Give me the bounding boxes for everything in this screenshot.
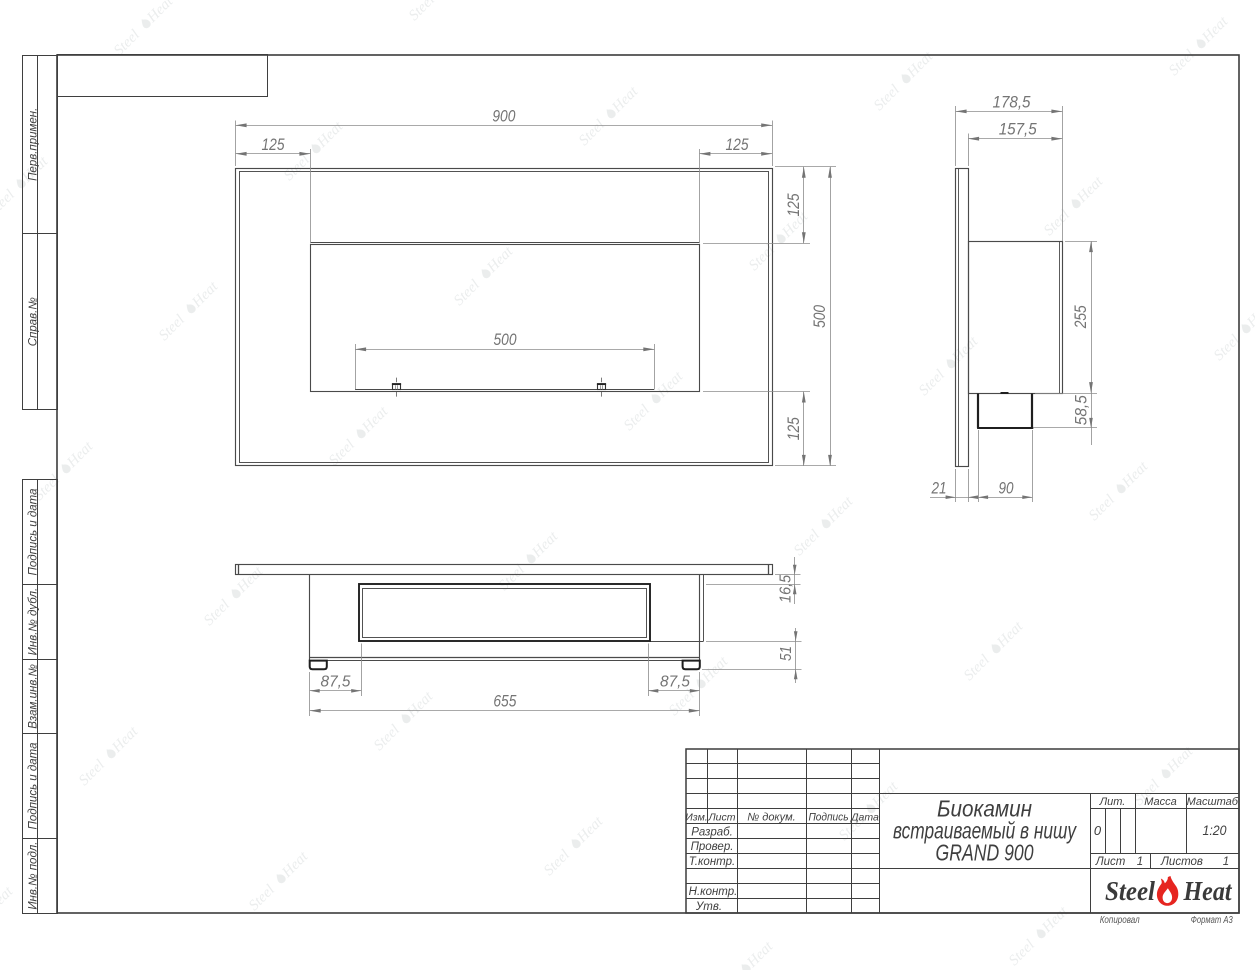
svg-text:1:20: 1:20 [1203,823,1227,838]
svg-text:0: 0 [1094,823,1102,838]
svg-text:Масштаб: Масштаб [1187,796,1239,808]
svg-text:Лит.: Лит. [1099,796,1126,808]
svg-text:Инв.№ дубл.: Инв.№ дубл. [28,588,40,656]
svg-text:500: 500 [494,331,518,349]
svg-text:Дата: Дата [850,812,879,824]
svg-text:178,5: 178,5 [993,93,1032,111]
svg-text:16,5: 16,5 [777,575,794,603]
svg-text:255: 255 [1072,305,1090,330]
svg-text:Инв.№ подл.: Инв.№ подл. [28,842,40,910]
svg-text:Подпись и дата: Подпись и дата [28,489,40,576]
svg-text:1: 1 [1137,856,1143,868]
svg-text:Взам.инв.№: Взам.инв.№ [28,663,40,728]
svg-text:Перв.примен.: Перв.примен. [28,108,40,181]
svg-text:87,5: 87,5 [321,674,351,691]
svg-text:Провер.: Провер. [691,841,734,853]
svg-text:Утв.: Утв. [695,901,722,913]
svg-text:Подпись: Подпись [809,812,849,824]
svg-text:Справ.№: Справ.№ [28,297,40,347]
svg-text:87,5: 87,5 [660,674,690,691]
svg-text:655: 655 [493,693,517,711]
svg-text:Изм.: Изм. [685,812,707,824]
svg-text:Лист: Лист [707,812,735,824]
svg-text:Листов: Листов [1160,856,1203,868]
svg-text:Heat: Heat [1183,876,1233,906]
svg-text:Лист: Лист [1095,856,1126,868]
svg-text:51: 51 [778,646,795,661]
svg-text:125: 125 [785,193,803,217]
svg-text:Разраб.: Разраб. [691,826,733,838]
svg-text:500: 500 [811,304,829,328]
svg-text:1: 1 [1223,856,1229,868]
svg-text:125: 125 [262,136,286,154]
svg-text:Копировал: Копировал [1100,915,1140,926]
svg-text:Формат А3: Формат А3 [1191,915,1233,926]
svg-text:900: 900 [492,107,516,125]
svg-text:№ докум.: № докум. [747,812,795,824]
svg-text:Масса: Масса [1144,796,1177,808]
svg-text:Т.контр.: Т.контр. [689,856,735,868]
svg-text:157,5: 157,5 [999,121,1038,139]
svg-text:Steel: Steel [1105,876,1155,906]
svg-text:21: 21 [931,479,947,497]
svg-text:90: 90 [999,479,1015,497]
svg-text:125: 125 [785,417,803,441]
svg-text:58,5: 58,5 [1072,394,1090,425]
svg-text:Н.контр.: Н.контр. [689,886,738,898]
svg-text:125: 125 [726,136,750,154]
svg-text:GRAND 900: GRAND 900 [936,840,1034,866]
svg-text:Подпись и дата: Подпись и дата [28,743,40,830]
